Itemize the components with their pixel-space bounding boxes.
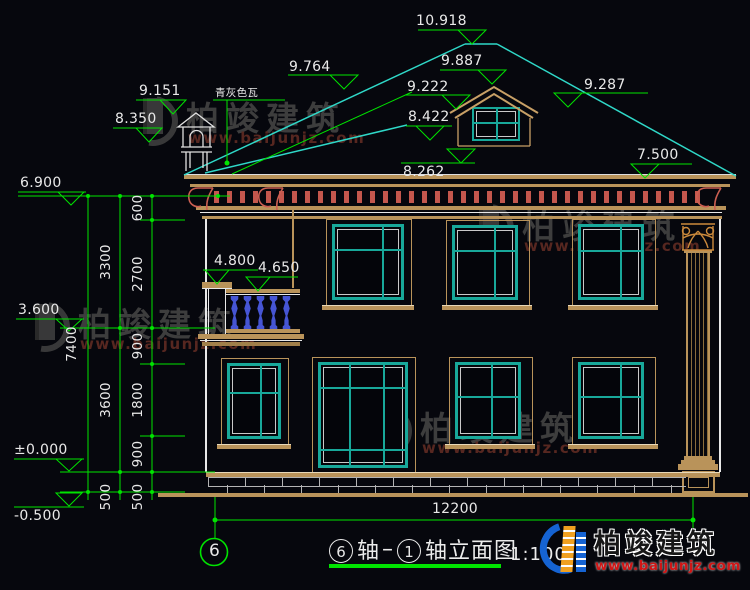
title-axis-word: 轴 (357, 540, 380, 564)
level-label-dormer-eave: 9.222 (407, 80, 449, 94)
level-label-floor2: 3.600 (18, 303, 60, 317)
dim-1800: 1800 (131, 382, 145, 418)
title-text: 轴立面图 (425, 540, 517, 564)
brand-logo: 柏竣建筑 www.baijunjz.com (538, 514, 750, 590)
dim-3600: 3600 (99, 382, 113, 418)
chimney-lines (178, 113, 214, 171)
column-capital (681, 224, 715, 250)
corbel-brackets (189, 188, 721, 210)
brand-url: www.baijunjz.com (595, 558, 741, 574)
title-underline (329, 564, 501, 568)
dim-500b: 500 (131, 484, 145, 511)
level-label-ground: ±0.000 (14, 443, 68, 457)
dim-2700: 2700 (131, 256, 145, 292)
level-label-dormer-sill: 8.422 (408, 110, 450, 124)
dimension-dots (86, 161, 696, 523)
level-label-ridge: 10.918 (416, 14, 467, 28)
dim-900a: 900 (131, 333, 145, 360)
level-label-eave: 8.262 (403, 165, 445, 179)
dim-total-height: 7400 (65, 326, 79, 362)
dim-3300: 3300 (99, 244, 113, 280)
title-dash: – (382, 538, 394, 562)
dim-900b: 900 (131, 441, 145, 468)
level-label-chimney-base: 8.350 (115, 112, 157, 126)
roof-material-note: 青灰色瓦 (215, 88, 258, 98)
dim-width: 12200 (432, 502, 478, 516)
brand-building-icon (576, 532, 586, 572)
title-axis-to-bubble: 1 (397, 539, 421, 563)
level-label-site: -0.500 (14, 509, 61, 523)
level-label-balcony-rail: 4.650 (258, 261, 300, 275)
level-label-eave-right: 7.500 (637, 148, 679, 162)
elevation-drawing: 柏竣建筑 www.baijunjz.com 柏竣建筑 www.baijunjz.… (0, 0, 750, 590)
title-axis-from-bubble: 6 (329, 539, 353, 563)
dim-600: 600 (131, 195, 145, 222)
level-label-roof-right: 9.287 (584, 78, 626, 92)
level-label-balcony-cap: 4.800 (214, 254, 256, 268)
level-label-dormer-apex: 9.887 (441, 54, 483, 68)
level-label-roof-left: 9.764 (289, 60, 331, 74)
dormer-roof-lines (450, 87, 538, 146)
brand-name: 柏竣建筑 (594, 522, 718, 561)
axis-bubble-6: 6 (208, 544, 221, 558)
dim-500: 500 (99, 484, 113, 511)
level-label-parapet: 6.900 (20, 176, 62, 190)
level-label-chimney-top: 9.151 (139, 84, 181, 98)
